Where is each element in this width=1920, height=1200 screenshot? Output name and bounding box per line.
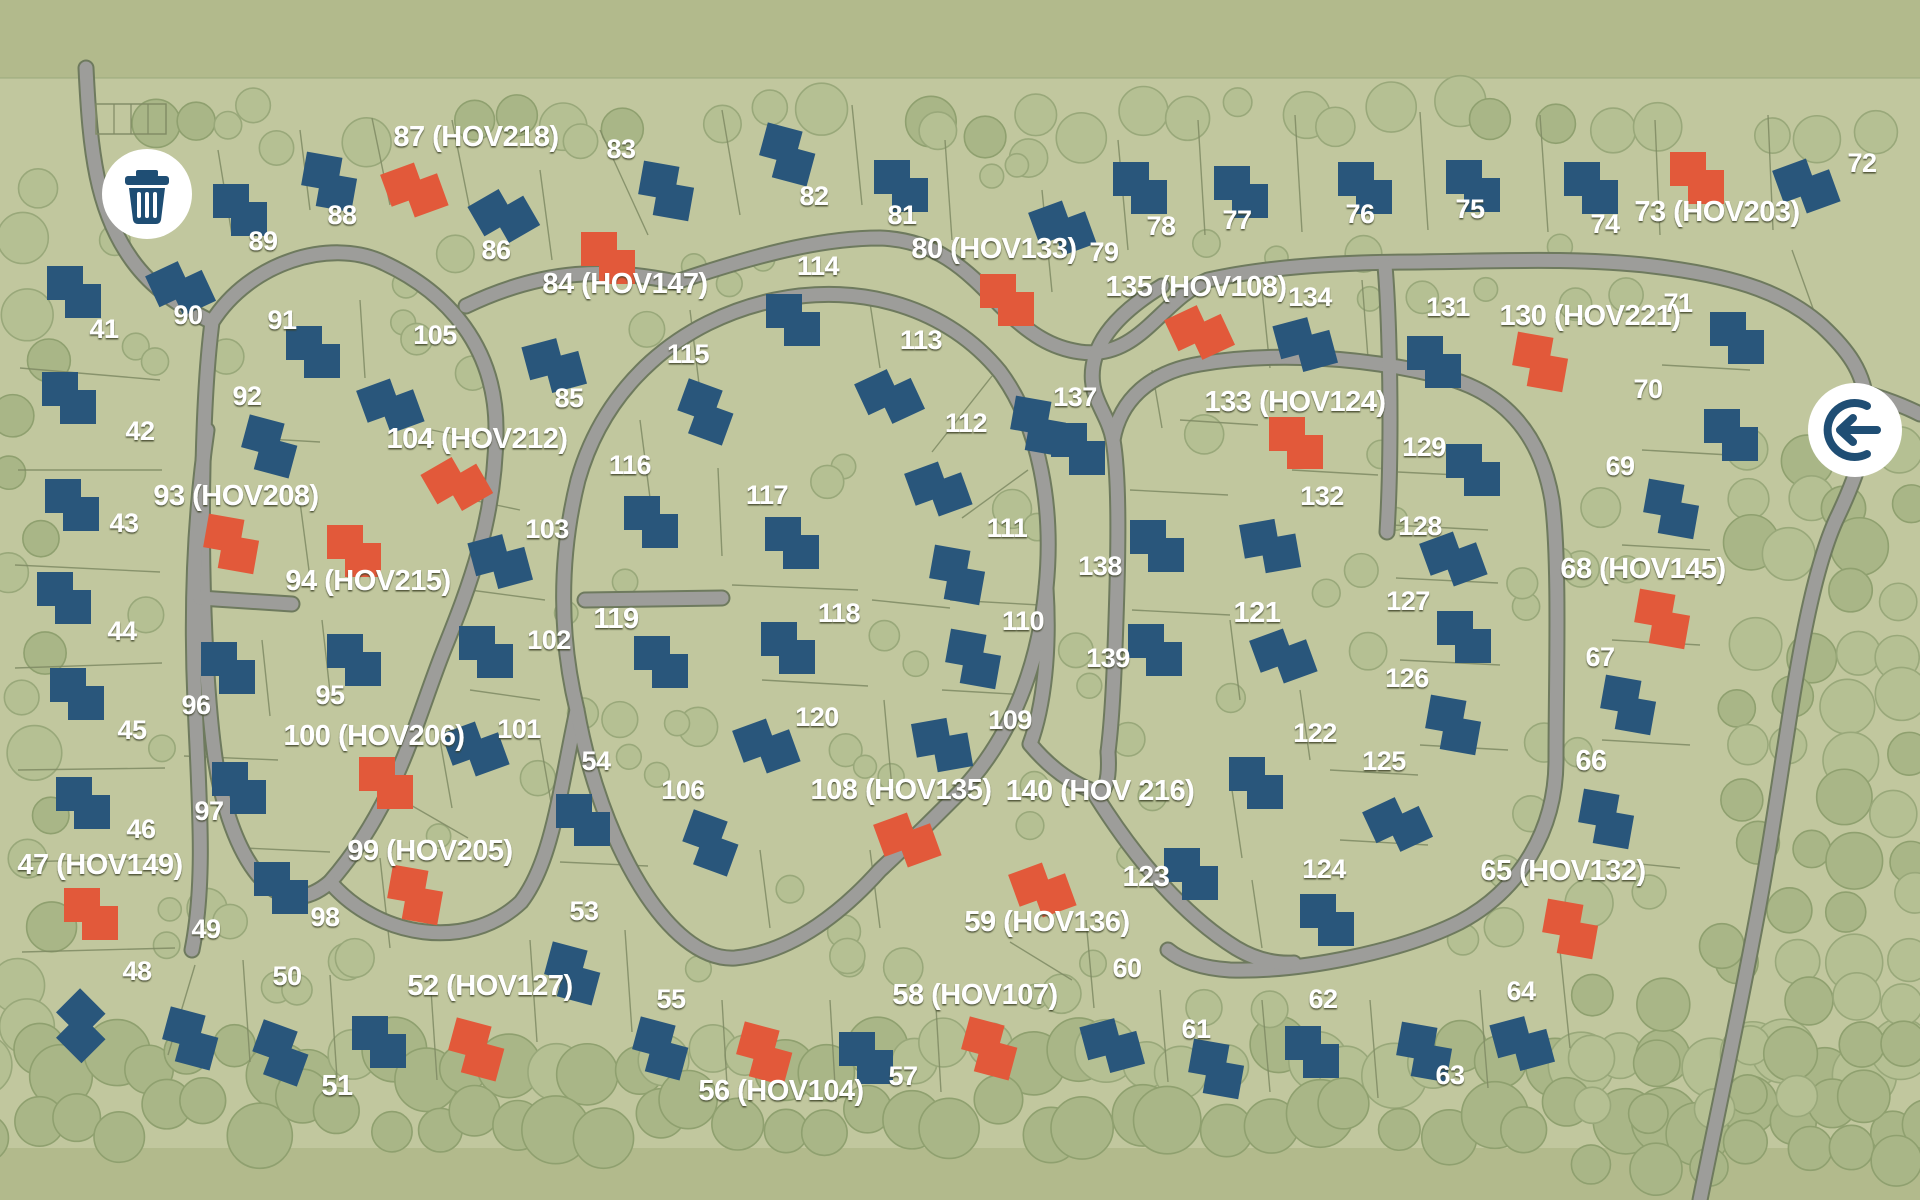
lot-label-111: 111 [987, 513, 1028, 543]
lot-label-110: 110 [1002, 606, 1044, 636]
lot-label-88: 88 [327, 200, 357, 230]
lot-label-87[interactable]: 87 (HOV218) [393, 121, 558, 153]
lot-label-135[interactable]: 135 (HOV108) [1106, 271, 1287, 303]
lot-label-78: 78 [1146, 211, 1176, 241]
lot-label-90: 90 [173, 300, 202, 330]
lot-label-59[interactable]: 59 (HOV136) [964, 906, 1129, 938]
lot-label-64: 64 [1506, 976, 1536, 1006]
lot-label-103: 103 [525, 514, 569, 544]
lot-label-77: 77 [1222, 205, 1251, 235]
lot-label-139: 139 [1086, 643, 1130, 673]
lot-label-140[interactable]: 140 (HOV 216) [1006, 775, 1195, 807]
lot-label-86: 86 [481, 235, 511, 265]
lot-label-99[interactable]: 99 (HOV205) [347, 835, 512, 867]
lot-label-93[interactable]: 93 (HOV208) [153, 480, 318, 512]
lot-label-95: 95 [315, 680, 345, 710]
lot-label-52[interactable]: 52 (HOV127) [407, 970, 572, 1002]
community-map: 41424344454647 (HOV149)4849505152 (HOV12… [0, 0, 1920, 1200]
lot-label-74: 74 [1590, 209, 1620, 239]
lot-label-60: 60 [1112, 953, 1141, 983]
lot-label-67: 67 [1585, 642, 1614, 672]
lot-label-113: 113 [900, 325, 943, 355]
lot-label-55: 55 [656, 984, 686, 1014]
lot-label-70: 70 [1633, 374, 1662, 404]
lot-label-43: 43 [109, 508, 139, 538]
lot-label-80[interactable]: 80 (HOV133) [911, 233, 1076, 265]
lot-label-65[interactable]: 65 (HOV132) [1480, 855, 1645, 887]
lot-label-98: 98 [310, 902, 340, 932]
lot-label-44: 44 [107, 616, 137, 646]
lot-label-129: 129 [1402, 432, 1446, 462]
lot-label-58[interactable]: 58 (HOV107) [892, 979, 1057, 1011]
trash-icon[interactable] [102, 149, 192, 239]
lot-label-68[interactable]: 68 (HOV145) [1560, 553, 1725, 585]
lot-label-50: 50 [272, 961, 301, 991]
lot-label-56[interactable]: 56 (HOV104) [698, 1075, 863, 1107]
lot-label-63: 63 [1435, 1060, 1465, 1090]
lot-label-116: 116 [609, 450, 652, 480]
lot-label-105: 105 [413, 320, 457, 350]
lot-label-131: 131 [1426, 292, 1470, 322]
lot-label-100[interactable]: 100 (HOV206) [284, 720, 465, 752]
lot-label-104[interactable]: 104 (HOV212) [387, 423, 568, 455]
lot-label-46: 46 [126, 814, 156, 844]
lot-label-66[interactable]: 66 [1575, 745, 1607, 777]
lot-label-109: 109 [988, 705, 1032, 735]
exit-icon[interactable] [1808, 383, 1902, 477]
lot-label-106: 106 [661, 775, 705, 805]
lot-label-123[interactable]: 123 [1123, 861, 1170, 893]
lot-label-102: 102 [527, 625, 571, 655]
lot-label-83: 83 [606, 134, 636, 164]
lot-label-47[interactable]: 47 (HOV149) [17, 849, 182, 881]
lot-label-82: 82 [799, 181, 828, 211]
lot-label-48: 48 [122, 956, 152, 986]
lot-label-108[interactable]: 108 (HOV135) [811, 774, 992, 806]
lot-label-69: 69 [1605, 451, 1635, 481]
lot-label-120: 120 [795, 702, 839, 732]
lot-label-91: 91 [267, 305, 297, 335]
lot-label-84[interactable]: 84 (HOV147) [542, 268, 707, 300]
lot-label-54: 54 [581, 746, 611, 776]
lot-label-76: 76 [1345, 199, 1375, 229]
lot-label-96: 96 [181, 690, 211, 720]
lot-label-115: 115 [667, 339, 710, 369]
lot-label-122: 122 [1293, 718, 1337, 748]
lot-label-51[interactable]: 51 [321, 1070, 353, 1102]
lot-label-126: 126 [1385, 663, 1429, 693]
lot-label-124: 124 [1302, 854, 1346, 884]
lot-label-61: 61 [1181, 1014, 1211, 1044]
lot-label-114: 114 [797, 251, 840, 281]
lot-label-72: 72 [1847, 148, 1876, 178]
lot-label-117: 117 [746, 480, 788, 510]
lot-label-79: 79 [1089, 237, 1119, 267]
lot-label-130[interactable]: 130 (HOV221) [1500, 300, 1681, 332]
lot-label-119[interactable]: 119 [593, 603, 639, 635]
lot-label-97: 97 [194, 796, 223, 826]
lot-label-132: 132 [1300, 481, 1344, 511]
lot-label-49: 49 [191, 914, 221, 944]
lot-label-42: 42 [125, 416, 154, 446]
lot-label-121[interactable]: 121 [1234, 597, 1281, 629]
lot-label-125: 125 [1362, 746, 1406, 776]
lot-label-62: 62 [1308, 984, 1337, 1014]
lot-label-45: 45 [117, 715, 147, 745]
lot-label-81: 81 [887, 200, 917, 230]
lot-label-41: 41 [89, 314, 119, 344]
lot-label-94[interactable]: 94 (HOV215) [285, 565, 450, 597]
lot-label-73[interactable]: 73 (HOV203) [1634, 196, 1799, 228]
site-map-canvas: 41424344454647 (HOV149)4849505152 (HOV12… [0, 0, 1920, 1200]
lot-label-92: 92 [232, 381, 261, 411]
lot-label-134: 134 [1288, 282, 1332, 312]
lot-label-57: 57 [888, 1061, 917, 1091]
lot-label-133[interactable]: 133 (HOV124) [1205, 386, 1386, 418]
lot-label-101: 101 [497, 714, 541, 744]
lot-label-118: 118 [818, 598, 861, 628]
lot-label-89: 89 [248, 226, 278, 256]
lot-label-128: 128 [1398, 511, 1442, 541]
lot-label-75: 75 [1455, 194, 1485, 224]
lot-label-127: 127 [1386, 586, 1430, 616]
lot-label-112: 112 [945, 408, 987, 438]
lot-label-85: 85 [554, 383, 584, 413]
lot-label-137: 137 [1053, 382, 1097, 412]
lot-label-138: 138 [1078, 551, 1122, 581]
lot-label-53: 53 [569, 896, 599, 926]
